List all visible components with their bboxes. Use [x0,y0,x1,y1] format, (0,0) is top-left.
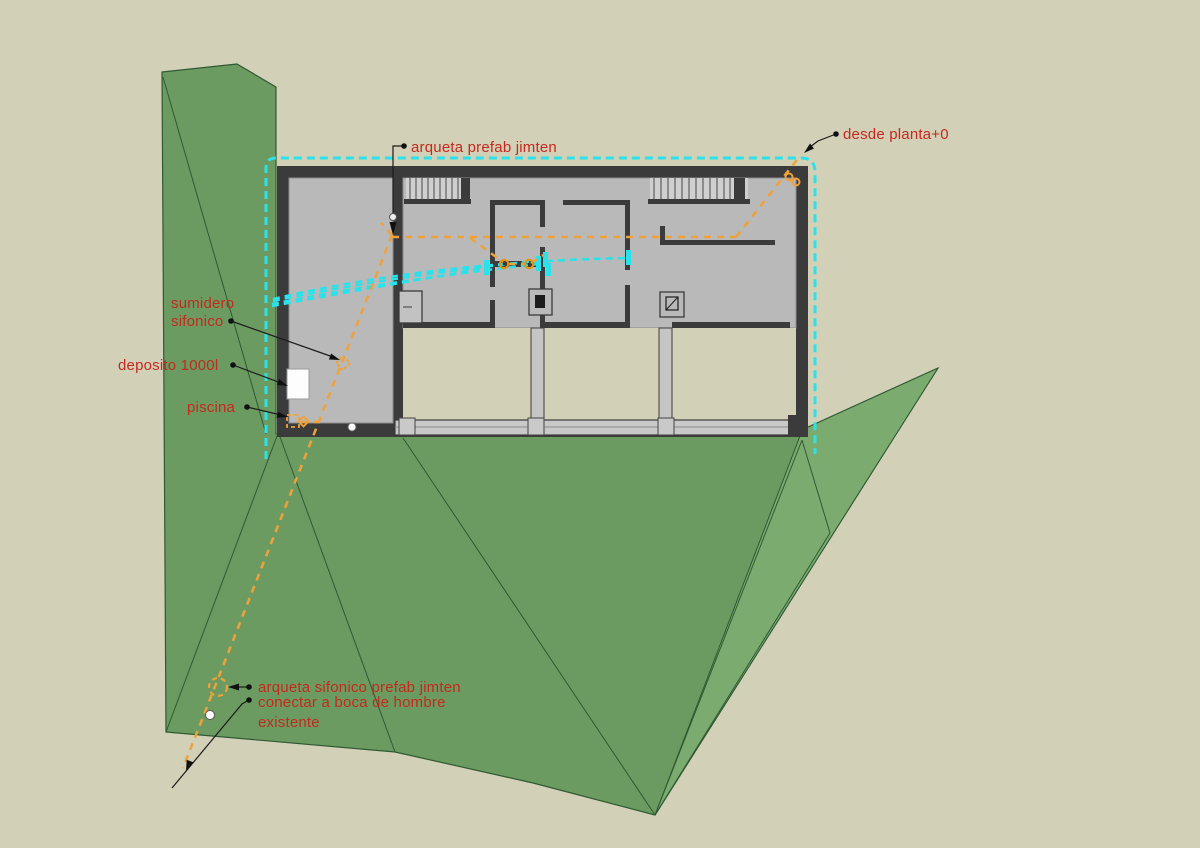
terrace-floor [403,328,796,420]
deposito-tank-square [287,369,309,399]
terrace-divider-2 [659,328,672,420]
label-sumidero-line1: sumidero [171,295,234,312]
stairs-top-left [404,178,471,204]
label-sumidero-line2: sifonico [171,313,223,330]
shaft-box-3 [660,292,684,317]
plan-drawing [0,0,1200,848]
sketchup-viewport: arqueta prefab jimten desde planta+0 sum… [0,0,1200,848]
stairs-top-right [648,178,750,204]
label-desde-planta: desde planta+0 [843,126,949,143]
glazing-post [528,418,544,435]
label-piscina: piscina [187,399,235,416]
glazing-post [399,418,415,435]
corner-post [788,415,808,437]
label-conectar-line1: conectar a boca de hombre [258,694,446,711]
label-arqueta-prefab: arqueta prefab jimten [411,139,557,156]
glazing-post [658,418,674,435]
terrace-divider-1 [531,328,544,420]
label-deposito: deposito 1000l [118,357,218,374]
building-plan [277,166,808,437]
label-conectar-line2: existente [258,714,320,731]
